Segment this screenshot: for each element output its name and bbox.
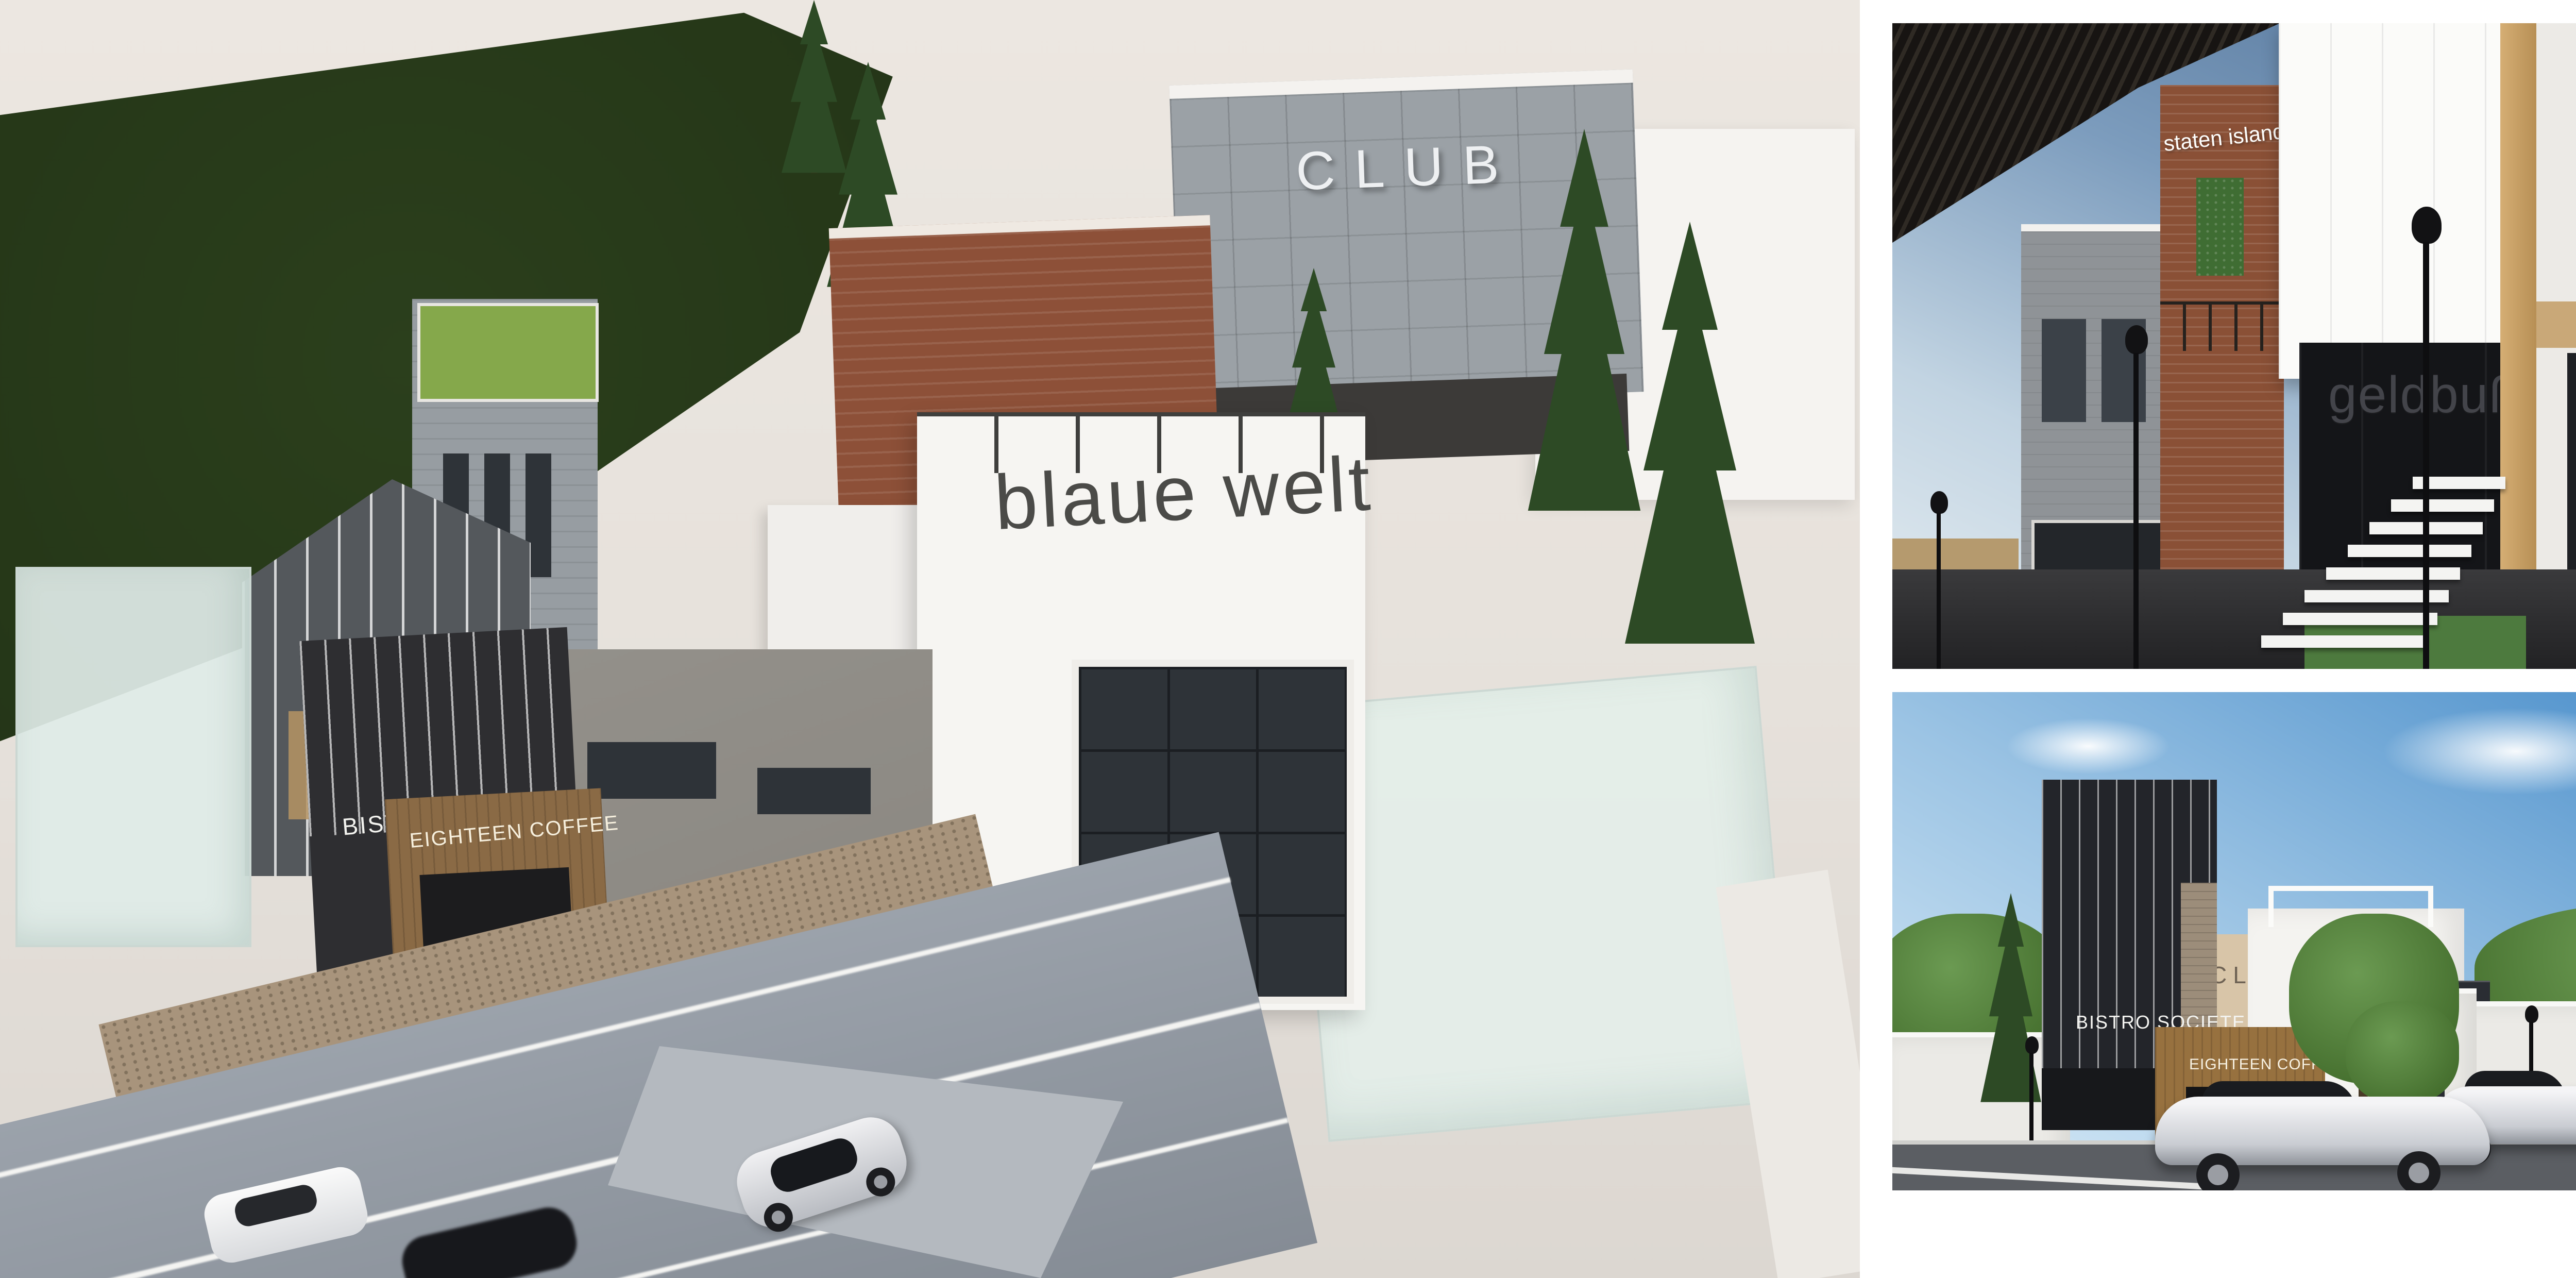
street-render-top-panel: staten island geldbuße [1892,23,2576,669]
staten-island-sign: staten island [2162,119,2286,156]
street-lamp-pole [2133,353,2139,669]
green-wall [2196,178,2244,276]
aerial-render-panel: CLUB blaue welt 18 BI [0,0,1860,1278]
club-sign: CLUB [1295,133,1519,203]
wood-band [2536,301,2576,348]
street-lamp [2025,1036,2039,1054]
stair-step [2348,545,2471,557]
glass-box-building [15,567,251,947]
street-lamp-pole [2423,242,2429,669]
stair-step [2326,567,2460,580]
street-lamp [2125,325,2148,354]
stair-step [2283,613,2437,625]
stair-step [2391,499,2494,512]
portfolio-sheet: CLUB blaue welt 18 BI [0,0,2576,1278]
stair-step [2261,635,2426,648]
street-lamp [1930,491,1948,514]
cloud [2006,718,2171,775]
white-panel-volume [2279,23,2536,379]
green-roof [417,303,599,402]
street-render-bottom-panel: CLUB BISTRO SOCIETE EIGHTEEN COFFEE [1892,692,2576,1190]
cloud [2382,708,2576,795]
eighteen-coffee-sign: EIGHTEEN COFFEE [409,812,620,853]
balcony-railing [2160,301,2284,351]
street-lamp-pole [1937,513,1941,669]
street-lamp [2412,207,2442,244]
silver-sports-car [2155,1081,2490,1190]
blaue-welt-sign: blaue welt [992,439,1375,547]
street-lamp [2525,1005,2538,1023]
